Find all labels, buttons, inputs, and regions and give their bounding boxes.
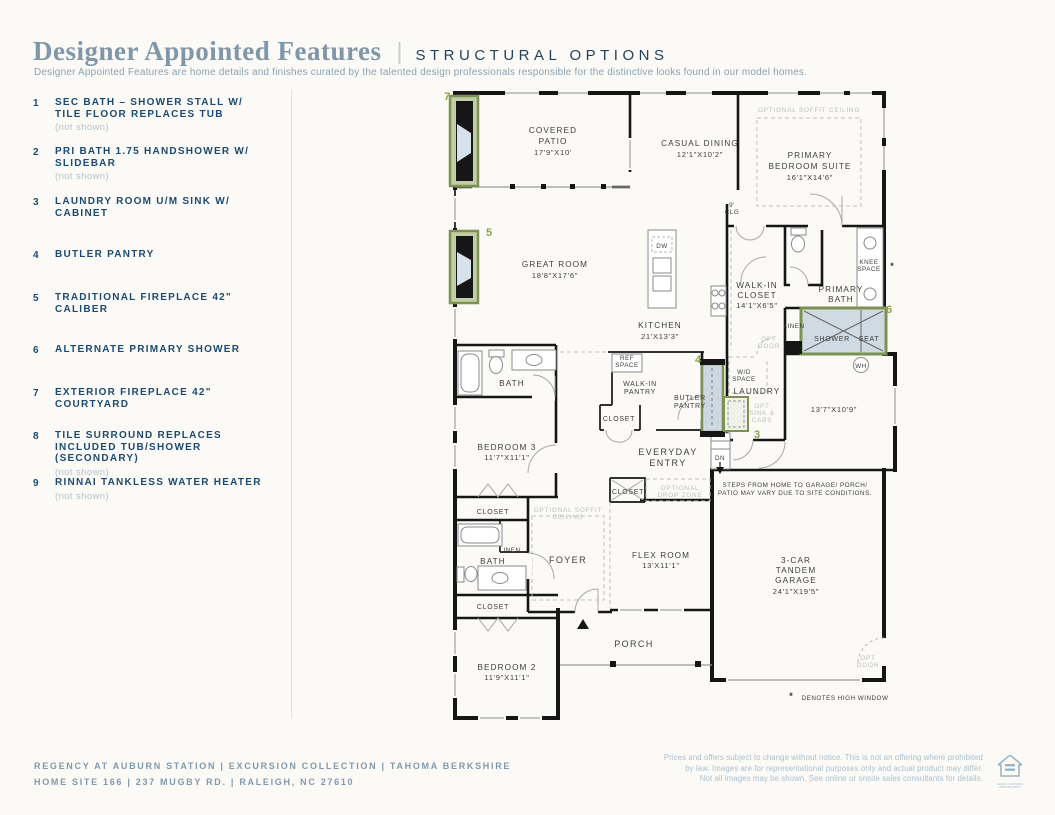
label-closet-entry: CLOSET <box>612 489 644 496</box>
sidebar-divider <box>291 90 292 718</box>
list-item: 8TILE SURROUND REPLACES INCLUDED TUB/SHO… <box>33 430 269 478</box>
item-note <box>55 317 269 318</box>
footer-line2: HOME SITE 166 | 237 MUGBY RD. | RALEIGH,… <box>34 774 511 790</box>
svg-text:16'1"X14'6": 16'1"X14'6" <box>787 173 833 182</box>
list-item: 2PRI BATH 1.75 HANDSHOWER W/ SLIDEBAR(no… <box>33 146 269 182</box>
item-number: 9 <box>33 477 55 502</box>
label-linen-bath2: LINEN <box>499 547 520 554</box>
item-label: RINNAI TANKLESS WATER HEATER <box>55 477 269 489</box>
room-label-walk-in-pantry: WALK-IN <box>623 381 657 388</box>
svg-text:DOOR: DOOR <box>758 343 780 350</box>
room-label-butler-pantry: BUTLER <box>674 395 706 402</box>
item-note: (not shown) <box>55 122 269 133</box>
page-subtitle: STRUCTURAL OPTIONS <box>416 47 669 64</box>
svg-text:PATIO MAY VARY DUE TO SITE CON: PATIO MAY VARY DUE TO SITE CONDITIONS. <box>718 490 872 497</box>
item-note <box>55 263 269 264</box>
label-courtyard-dim: 13'7"X10'9" <box>811 405 857 414</box>
footer-line1: REGENCY AT AUBURN STATION | EXCURSION CO… <box>34 758 511 774</box>
footer-project-info: REGENCY AT AUBURN STATION | EXCURSION CO… <box>34 758 511 790</box>
item-label: TILE SURROUND REPLACES INCLUDED TUB/SHOW… <box>55 430 269 465</box>
label-dishwasher: DW <box>656 243 668 250</box>
room-label-great-room: GREAT ROOM <box>522 260 588 269</box>
list-item: 4BUTLER PANTRY <box>33 249 269 264</box>
label-opt-sink-cabs: OPT <box>754 403 770 410</box>
item-number: 8 <box>33 430 55 478</box>
title-divider: | <box>397 38 403 65</box>
svg-text:GARAGE: GARAGE <box>775 576 817 585</box>
room-label-bedroom2: BEDROOM 2 <box>477 663 536 672</box>
note-steps: STEPS FROM HOME TO GARAGE/ PORCH/ <box>722 482 867 489</box>
item-note <box>55 358 269 359</box>
label-optional-soffit-suite: OPTIONAL SOFFIT CEILING <box>758 107 860 114</box>
svg-text:21'X13'3": 21'X13'3" <box>641 332 679 341</box>
svg-text:CLG: CLG <box>725 209 739 216</box>
front-door-arrow <box>577 619 589 629</box>
list-item: 5TRADITIONAL FIREPLACE 42" CALIBER <box>33 292 269 318</box>
svg-text:11'9"X11'1": 11'9"X11'1" <box>484 673 529 682</box>
svg-text:11'7"X11'1": 11'7"X11'1" <box>484 453 529 462</box>
room-label-primary-bath: PRIMARY <box>819 285 864 294</box>
footnote-asterisk: * <box>789 691 793 701</box>
item-number: 6 <box>33 344 55 359</box>
label-water-heater: WH <box>855 363 867 370</box>
svg-text:SINK &: SINK & <box>749 410 775 417</box>
room-label-bath3: BATH <box>499 379 525 388</box>
svg-text:DOOR: DOOR <box>857 662 879 669</box>
footer-disclaimer: Prices and offers subject to change with… <box>653 753 983 785</box>
label-opt-door-wic: OPT <box>761 336 777 343</box>
list-item: 7EXTERIOR FIREPLACE 42" COURTYARD <box>33 387 269 413</box>
equal-housing-label: EQUAL HOUSING OPPORTUNITY <box>996 783 1024 789</box>
svg-text:BATH: BATH <box>828 295 854 304</box>
label-knee-space: KNEE <box>859 259 878 266</box>
item-note: (not shown) <box>55 491 269 502</box>
item-number: 2 <box>33 146 55 182</box>
svg-text:PANTRY: PANTRY <box>674 403 706 410</box>
list-item: 3LAUNDRY ROOM U/M SINK W/ CABINET <box>33 196 269 222</box>
item-note: (not shown) <box>55 467 269 478</box>
label-9ft-ceiling: 9' <box>729 202 735 209</box>
item-note <box>55 221 269 222</box>
label-ref-space: REF <box>620 355 634 362</box>
label-linen-primary: LINEN <box>783 323 804 330</box>
item-label: SEC BATH – SHOWER STALL W/ TILE FLOOR RE… <box>55 97 269 120</box>
room-label-garage: 3-CAR <box>781 556 811 565</box>
item-number: 1 <box>33 97 55 133</box>
page-header: Designer Appointed Features | STRUCTURAL… <box>33 36 668 67</box>
svg-text:CABS: CABS <box>752 417 773 424</box>
label-drop-zone: OPTIONAL <box>661 485 700 492</box>
item-note: (not shown) <box>55 171 269 182</box>
svg-text:12'1"X10'2": 12'1"X10'2" <box>677 150 723 159</box>
svg-text:17'9"X10': 17'9"X10' <box>534 148 572 157</box>
label-optional-soffit-foyer: OPTIONAL SOFFIT <box>534 507 603 514</box>
room-label-kitchen: KITCHEN <box>638 321 682 330</box>
label-closet-bedroom3: CLOSET <box>477 509 509 516</box>
room-label-porch: PORCH <box>614 639 654 649</box>
item-label: LAUNDRY ROOM U/M SINK W/ CABINET <box>55 196 269 219</box>
room-label-primary-suite: PRIMARY <box>788 151 833 160</box>
list-item: 9RINNAI TANKLESS WATER HEATER(not shown) <box>33 477 269 502</box>
svg-text:18'8"X17'6": 18'8"X17'6" <box>532 271 578 280</box>
room-label-foyer: FOYER <box>549 555 587 565</box>
equal-housing-icon: EQUAL HOUSING OPPORTUNITY <box>996 755 1024 789</box>
svg-text:SPACE: SPACE <box>857 266 880 273</box>
svg-text:CLOSET: CLOSET <box>737 291 776 300</box>
room-label-bedroom3: BEDROOM 3 <box>477 443 536 452</box>
item-number: 4 <box>33 249 55 264</box>
room-label-everyday-entry: EVERYDAY <box>638 447 697 457</box>
page-description: Designer Appointed Features are home det… <box>34 67 807 78</box>
item-label: EXTERIOR FIREPLACE 42" COURTYARD <box>55 387 269 410</box>
item-note <box>55 412 269 413</box>
label-shower: SHOWER <box>814 336 850 343</box>
svg-text:SPACE: SPACE <box>615 362 638 369</box>
svg-text:CEILING: CEILING <box>552 514 583 521</box>
list-item: 6ALTERNATE PRIMARY SHOWER <box>33 344 269 359</box>
svg-text:14'1"X6'5": 14'1"X6'5" <box>736 301 777 310</box>
label-opt-door-garage: OPT <box>860 655 876 662</box>
floor-plan-drawing: 7 5 6 4 3 COVERED PATIO 17'9"X10' CASUAL… <box>440 85 900 725</box>
svg-text:BEDROOM SUITE: BEDROOM SUITE <box>769 162 852 171</box>
page-title: Designer Appointed Features <box>33 36 382 67</box>
marker-4: 4 <box>695 354 702 366</box>
label-wd-space: W/D <box>737 369 751 376</box>
room-label-laundry: LAUNDRY <box>734 387 781 396</box>
item-number: 3 <box>33 196 55 222</box>
svg-text:ENTRY: ENTRY <box>649 458 686 468</box>
room-label-bath2: BATH <box>480 557 506 566</box>
label-seat: SEAT <box>859 336 880 343</box>
porch-posts <box>610 661 701 667</box>
svg-text:24'1"X19'5": 24'1"X19'5" <box>773 587 819 596</box>
label-closet-pantry: CLOSET <box>603 416 635 423</box>
item-label: ALTERNATE PRIMARY SHOWER <box>55 344 269 356</box>
item-label: TRADITIONAL FIREPLACE 42" CALIBER <box>55 292 269 315</box>
svg-text:TANDEM: TANDEM <box>776 566 817 575</box>
item-number: 7 <box>33 387 55 413</box>
label-closet-bedroom2: CLOSET <box>477 604 509 611</box>
room-label-flex: FLEX ROOM <box>632 551 690 560</box>
room-label-walk-in-closet: WALK-IN <box>736 281 778 290</box>
svg-text:13'X11'1": 13'X11'1" <box>642 561 680 570</box>
floor-plan: 7 5 6 4 3 COVERED PATIO 17'9"X10' CASUAL… <box>440 85 900 730</box>
marker-3: 3 <box>754 429 760 441</box>
footnote-high-window: DENOTES HIGH WINDOW <box>802 695 889 702</box>
room-label-casual-dining: CASUAL DINING <box>661 139 739 148</box>
list-item: 1SEC BATH – SHOWER STALL W/ TILE FLOOR R… <box>33 97 269 133</box>
item-label: PRI BATH 1.75 HANDSHOWER W/ SLIDEBAR <box>55 146 269 169</box>
item-number: 5 <box>33 292 55 318</box>
marker-6: 6 <box>886 304 892 316</box>
marker-7: 7 <box>444 91 450 103</box>
svg-text:PANTRY: PANTRY <box>624 389 656 396</box>
marker-5: 5 <box>486 227 492 239</box>
svg-text:SPACE: SPACE <box>732 376 755 383</box>
room-label-covered-patio: COVERED <box>529 126 577 135</box>
item-label: BUTLER PANTRY <box>55 249 269 261</box>
svg-text:DROP ZONE: DROP ZONE <box>657 492 702 499</box>
label-dn: DN <box>715 455 725 462</box>
svg-text:PATIO: PATIO <box>539 137 568 146</box>
high-window-asterisk: * <box>890 261 894 271</box>
